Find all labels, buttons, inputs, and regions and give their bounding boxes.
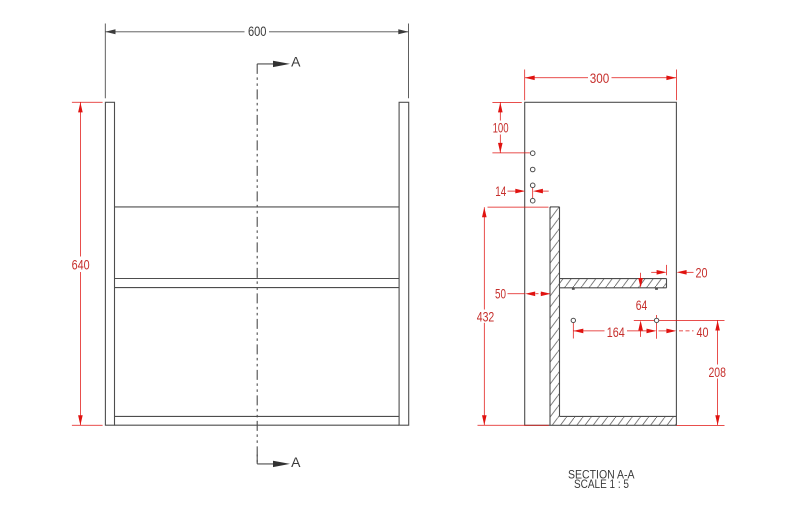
svg-text:164: 164 <box>607 324 625 340</box>
svg-text:432: 432 <box>477 308 495 324</box>
svg-text:40: 40 <box>697 324 709 340</box>
svg-text:50: 50 <box>495 286 506 302</box>
svg-text:100: 100 <box>493 120 509 136</box>
svg-text:600: 600 <box>248 23 267 39</box>
svg-text:20: 20 <box>696 264 708 280</box>
svg-text:640: 640 <box>72 257 90 273</box>
svg-text:A: A <box>291 454 301 470</box>
svg-text:208: 208 <box>708 364 726 380</box>
svg-text:A: A <box>291 54 301 70</box>
svg-text:64: 64 <box>636 297 648 313</box>
svg-text:14: 14 <box>495 183 506 199</box>
svg-text:300: 300 <box>590 70 610 86</box>
svg-text:SCALE 1 : 5: SCALE 1 : 5 <box>574 479 629 491</box>
